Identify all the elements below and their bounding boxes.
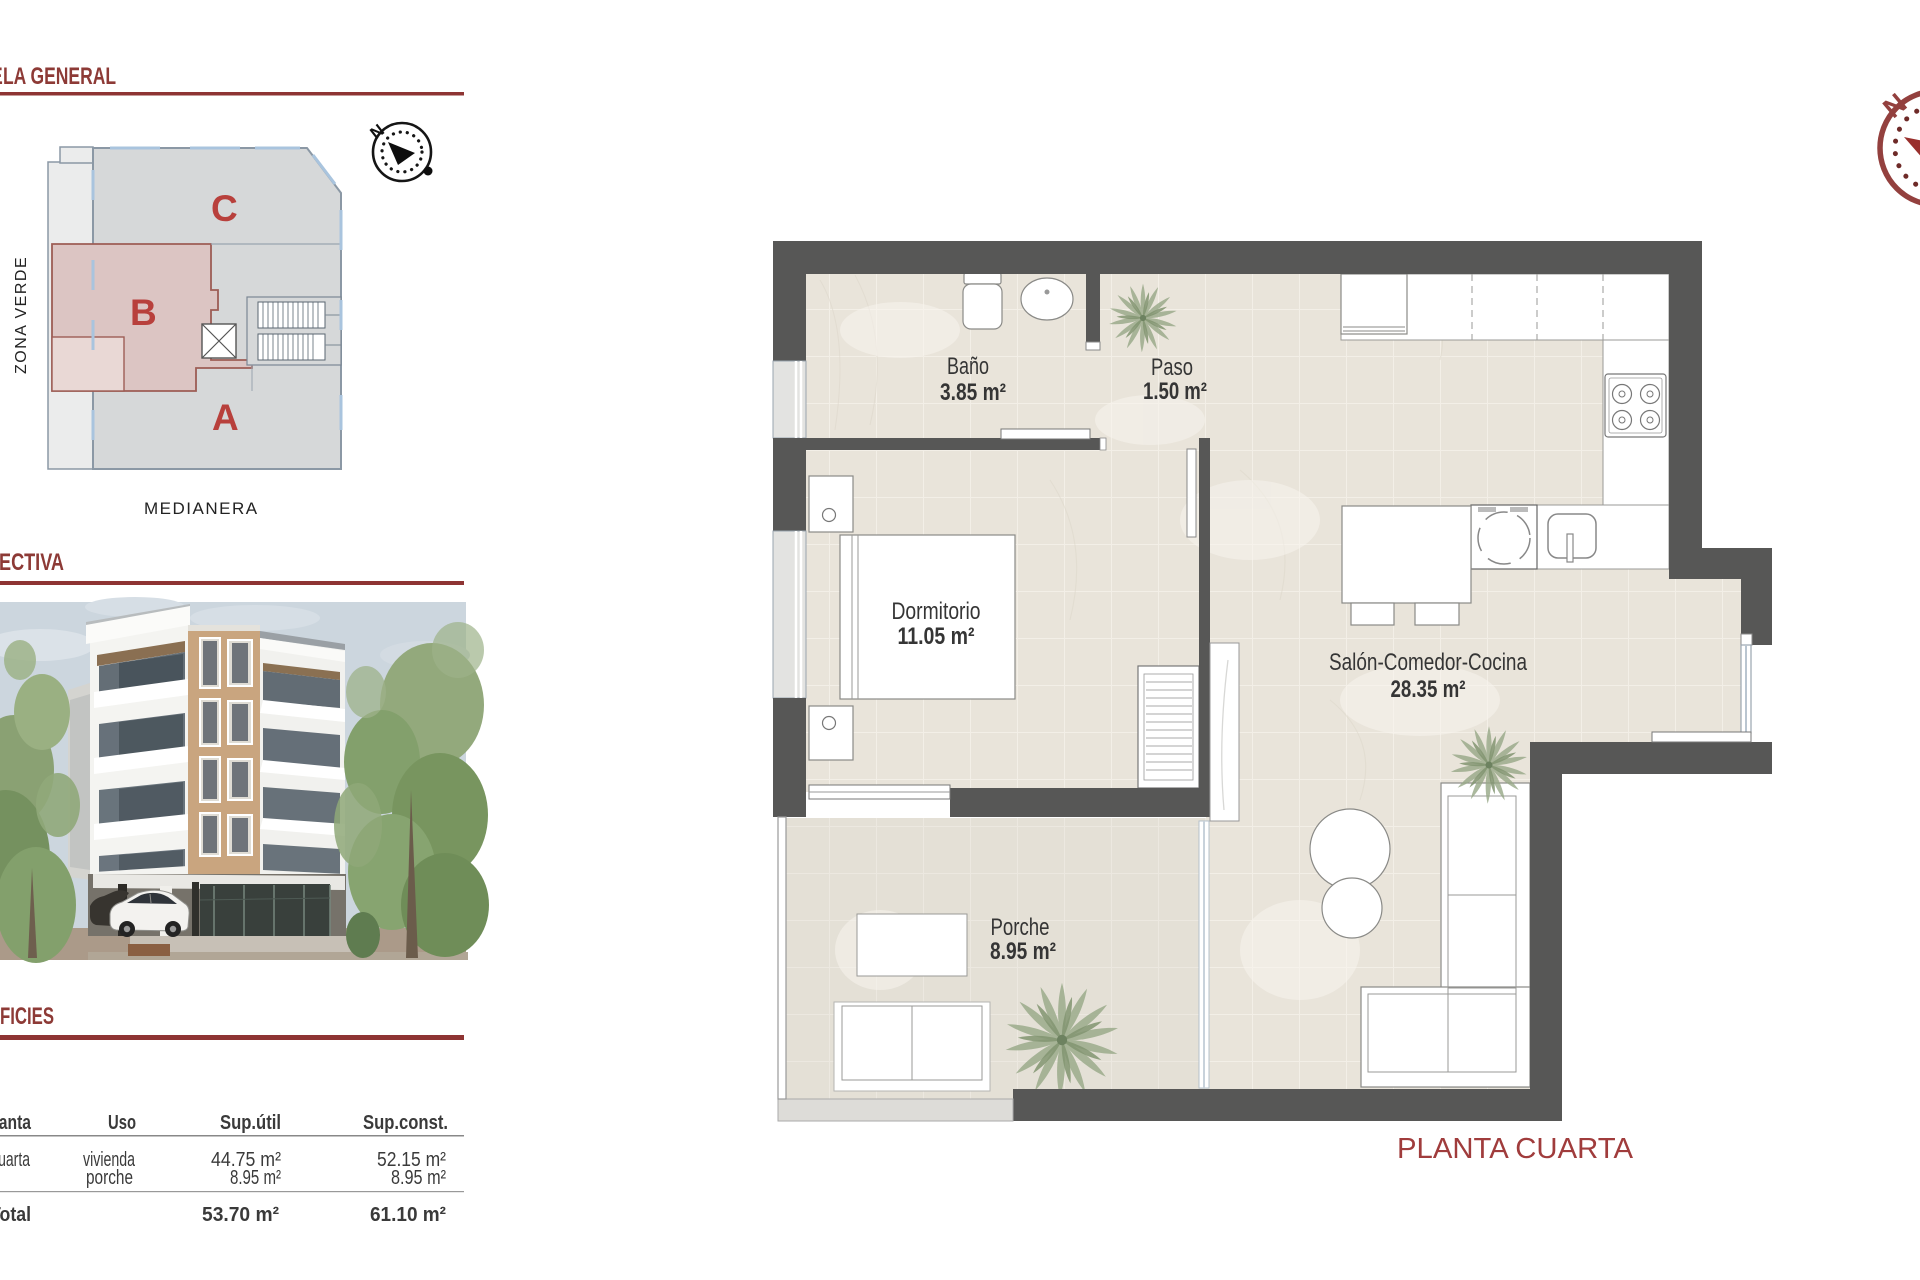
svg-text:Salón-Comedor-Cocina: Salón-Comedor-Cocina bbox=[1329, 649, 1528, 676]
svg-text:MEDIANERA: MEDIANERA bbox=[144, 499, 259, 518]
svg-text:ZONA VERDE: ZONA VERDE bbox=[13, 256, 30, 374]
svg-text:3.85 m²: 3.85 m² bbox=[940, 379, 1006, 406]
svg-text:Paso: Paso bbox=[1151, 354, 1193, 381]
svg-text:FICIES: FICIES bbox=[0, 1003, 54, 1030]
svg-text:PLANTA CUARTA: PLANTA CUARTA bbox=[1397, 1133, 1634, 1165]
svg-text:Baño: Baño bbox=[947, 353, 989, 380]
svg-text:Dormitorio: Dormitorio bbox=[892, 598, 981, 625]
svg-text:11.05 m²: 11.05 m² bbox=[898, 623, 975, 650]
svg-text:Uso: Uso bbox=[108, 1112, 136, 1134]
svg-text:28.35 m²: 28.35 m² bbox=[1391, 676, 1466, 703]
svg-text:porche: porche bbox=[86, 1167, 133, 1189]
svg-text:C: C bbox=[211, 188, 238, 229]
svg-text:8.95 m²: 8.95 m² bbox=[391, 1167, 446, 1189]
svg-text:Porche: Porche bbox=[991, 914, 1050, 941]
svg-text:Planta: Planta bbox=[0, 1112, 32, 1134]
svg-text:Cuarta: Cuarta bbox=[0, 1149, 31, 1171]
svg-text:61.10 m²: 61.10 m² bbox=[370, 1204, 446, 1226]
svg-text:Sup.útil: Sup.útil bbox=[220, 1112, 281, 1134]
svg-text:ECTIVA: ECTIVA bbox=[0, 549, 64, 576]
svg-text:53.70 m²: 53.70 m² bbox=[202, 1204, 279, 1226]
svg-text:Sup.const.: Sup.const. bbox=[363, 1112, 448, 1134]
svg-text:Total: Total bbox=[0, 1204, 31, 1226]
svg-text:1.50 m²: 1.50 m² bbox=[1143, 378, 1207, 405]
svg-text:8.95 m²: 8.95 m² bbox=[990, 938, 1056, 965]
svg-text:LA GENERAL: LA GENERAL bbox=[3, 63, 116, 90]
svg-text:A: A bbox=[212, 397, 239, 438]
svg-text:B: B bbox=[130, 292, 157, 333]
svg-text:8.95 m²: 8.95 m² bbox=[230, 1167, 281, 1189]
